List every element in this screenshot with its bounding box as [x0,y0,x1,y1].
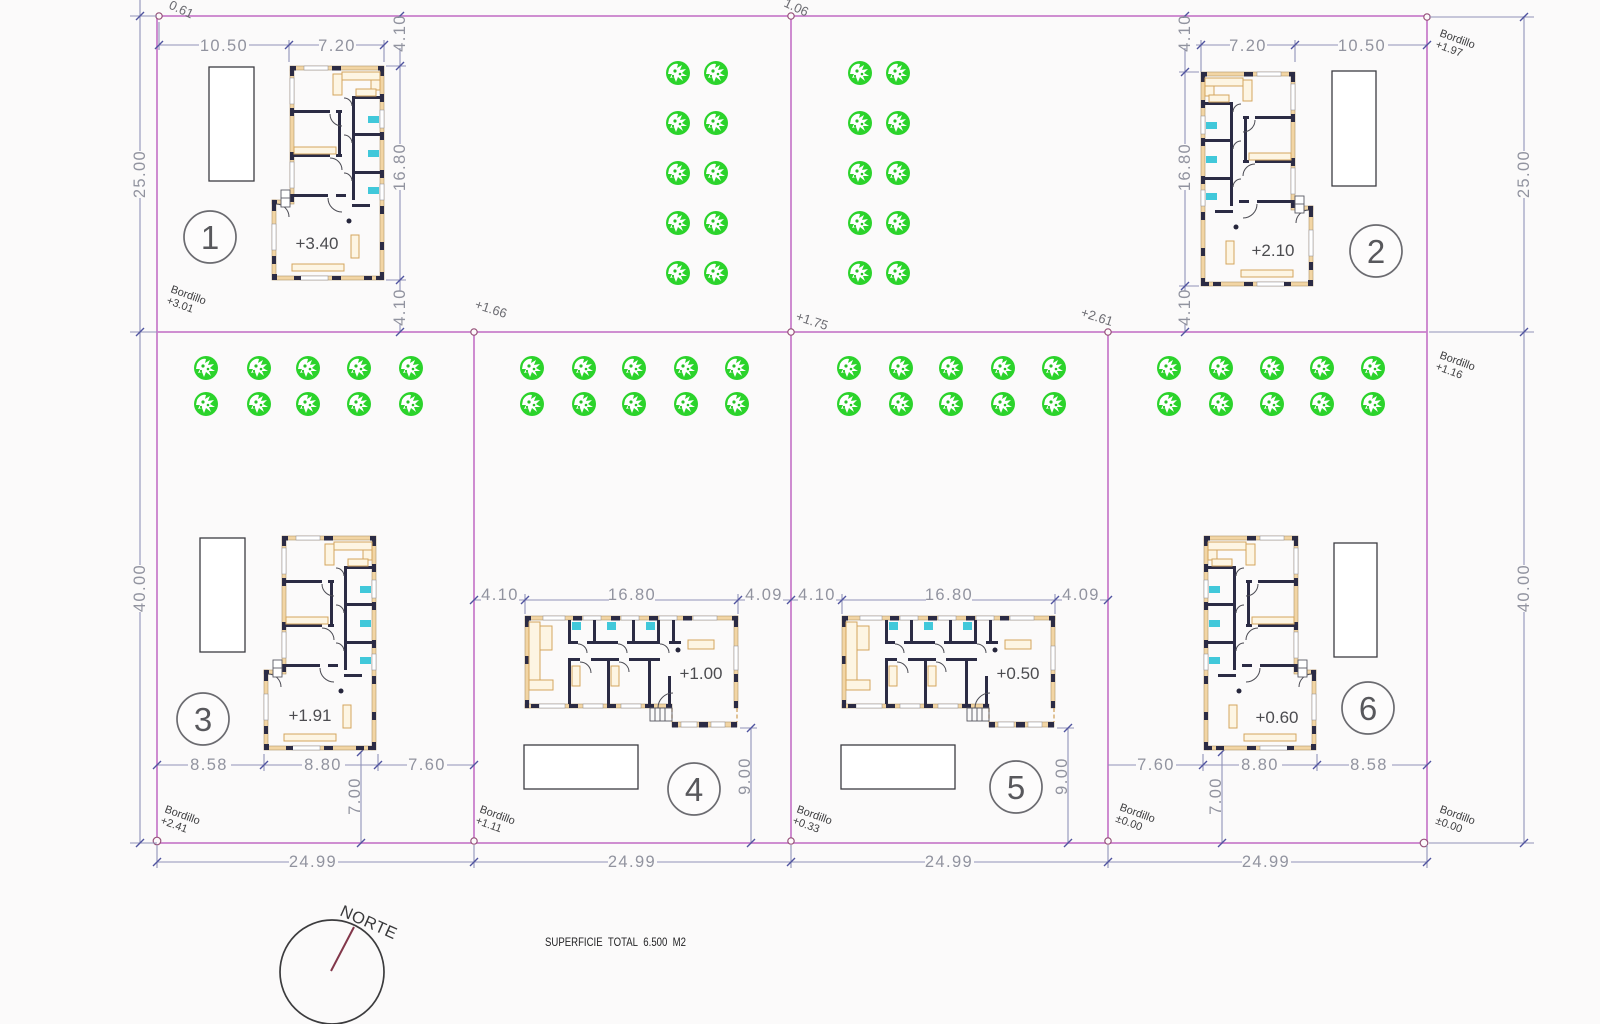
svg-text:16.80: 16.80 [391,143,409,191]
svg-text:SUPERFICIE TOTAL 6.500 M2: SUPERFICIE TOTAL 6.500 M2 [545,935,686,949]
svg-text:16.80: 16.80 [925,586,973,604]
svg-text:7.20: 7.20 [318,37,356,55]
svg-text:8.80: 8.80 [1241,756,1279,774]
svg-text:16.80: 16.80 [1176,143,1194,191]
svg-text:2: 2 [1367,233,1385,270]
svg-text:7.60: 7.60 [1137,756,1175,774]
svg-text:8.58: 8.58 [1350,756,1388,774]
svg-text:+1.91: +1.91 [288,706,331,725]
svg-text:7.20: 7.20 [1229,37,1267,55]
svg-text:4.10: 4.10 [391,288,409,326]
svg-text:9.00: 9.00 [1053,757,1071,795]
svg-text:4.10: 4.10 [798,586,836,604]
svg-text:4.10: 4.10 [1176,288,1194,326]
svg-text:4.09: 4.09 [745,586,783,604]
svg-text:+3.40: +3.40 [295,234,338,253]
svg-text:4.09: 4.09 [1062,586,1100,604]
svg-text:+2.10: +2.10 [1251,241,1294,260]
svg-text:40.00: 40.00 [1515,564,1533,612]
svg-text:8.80: 8.80 [304,756,342,774]
svg-text:24.99: 24.99 [289,853,337,871]
svg-text:24.99: 24.99 [608,853,656,871]
svg-text:3: 3 [194,701,212,738]
svg-text:1: 1 [201,219,219,256]
svg-text:10.50: 10.50 [1338,37,1386,55]
svg-text:+0.60: +0.60 [1255,708,1298,727]
svg-text:7.00: 7.00 [1207,777,1225,815]
svg-text:25.00: 25.00 [1515,150,1533,198]
svg-text:4: 4 [685,771,703,808]
svg-text:6: 6 [1359,690,1377,727]
svg-text:40.00: 40.00 [131,564,149,612]
svg-text:8.58: 8.58 [190,756,228,774]
svg-text:+1.00: +1.00 [679,664,722,683]
svg-text:16.80: 16.80 [608,586,656,604]
svg-text:24.99: 24.99 [1242,853,1290,871]
svg-text:24.99: 24.99 [925,853,973,871]
svg-text:7.60: 7.60 [408,756,446,774]
svg-text:5: 5 [1007,769,1025,806]
svg-text:25.00: 25.00 [131,150,149,198]
svg-text:4.10: 4.10 [391,14,409,52]
svg-text:10.50: 10.50 [200,37,248,55]
svg-text:9.00: 9.00 [736,757,754,795]
svg-text:7.00: 7.00 [346,777,364,815]
svg-text:+0.50: +0.50 [996,664,1039,683]
svg-text:4.10: 4.10 [1176,14,1194,52]
svg-text:4.10: 4.10 [481,586,519,604]
